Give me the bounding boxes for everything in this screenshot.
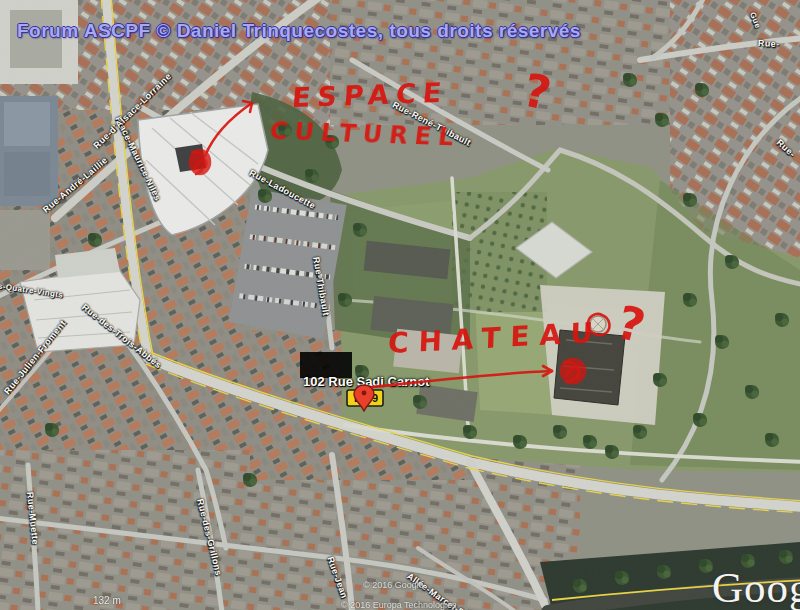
annotation-arrow-chateau [372,371,552,387]
placemark-pin-icon[interactable] [354,385,374,411]
annotation-scribble-espace [190,150,210,174]
annotation-espace-text: ESPACE [291,76,450,113]
forum-copyright-header: Forum ASCPF © Daniel Trinquecostes, tous… [17,20,581,42]
google-logo-watermark: Google [712,563,800,610]
copyright-google: © 2016 Google [363,580,424,590]
scale-text: 132 m [93,595,121,606]
annotation-scribble-chateau [561,359,585,383]
copyright-europa: © 2016 Europa Technologies [341,600,457,610]
google-earth-viewport[interactable]: Place-Maurice-Nilès Rue-d'Alsace-Lorrain… [0,0,800,610]
annotation-arrow-espace [205,103,252,156]
